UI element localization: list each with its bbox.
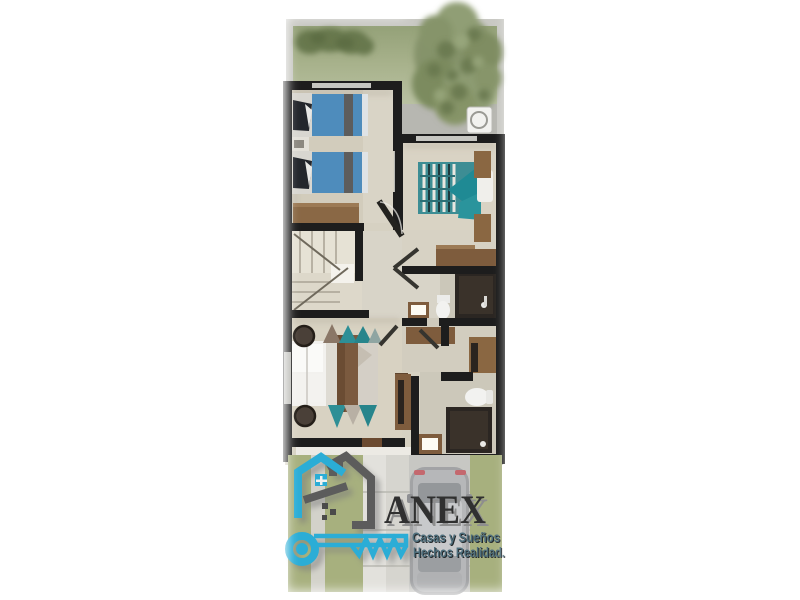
svg-text:ANEX: ANEX — [384, 487, 486, 532]
svg-text:Hechos Realidad.: Hechos Realidad. — [413, 545, 505, 560]
svg-text:Casas y Sueños: Casas y Sueños — [412, 530, 500, 545]
